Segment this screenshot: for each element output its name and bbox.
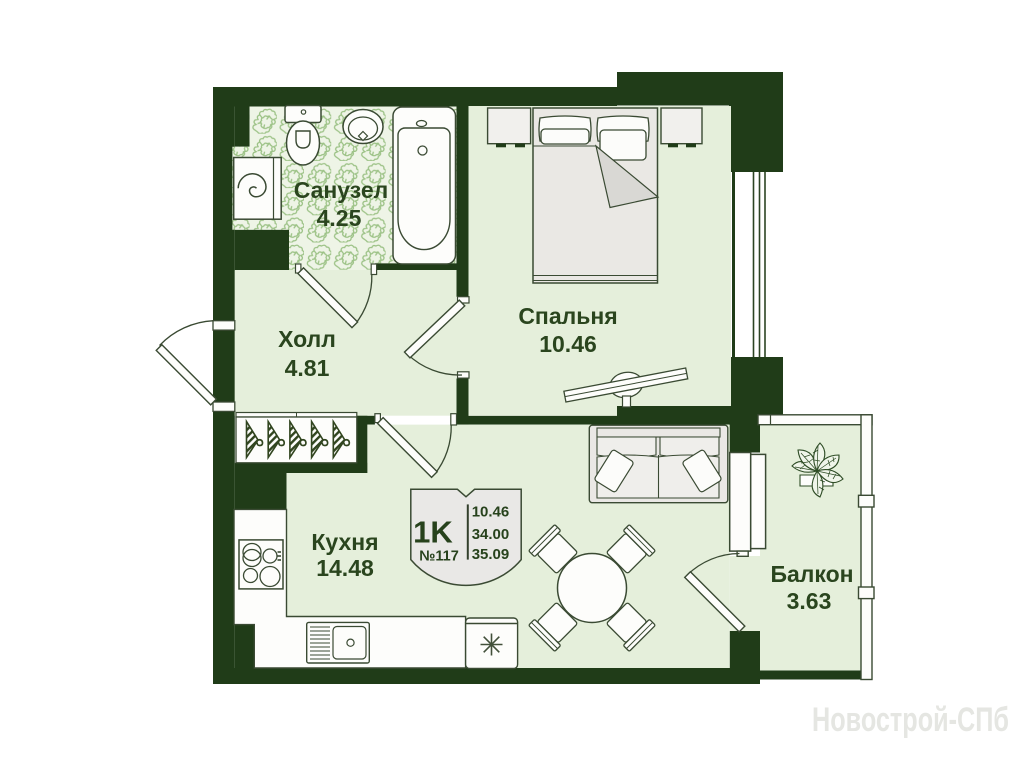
svg-text:14.48: 14.48: [316, 555, 374, 581]
svg-text:10.46: 10.46: [472, 504, 510, 521]
svg-text:35.09: 35.09: [472, 546, 510, 563]
svg-text:10.46: 10.46: [539, 331, 597, 357]
svg-text:Новострой-СПб: Новострой-СПб: [812, 701, 1009, 739]
svg-text:1K: 1K: [413, 515, 453, 550]
svg-text:№117: №117: [419, 549, 459, 565]
svg-text:Холл: Холл: [278, 326, 336, 352]
svg-text:3.63: 3.63: [787, 588, 832, 614]
svg-text:4.25: 4.25: [317, 205, 362, 231]
svg-text:Кухня: Кухня: [311, 529, 378, 555]
svg-text:Санузел: Санузел: [294, 177, 389, 203]
svg-text:Спальня: Спальня: [518, 303, 617, 329]
svg-text:Балкон: Балкон: [770, 561, 853, 587]
svg-text:34.00: 34.00: [472, 526, 510, 543]
svg-text:4.81: 4.81: [285, 355, 330, 381]
